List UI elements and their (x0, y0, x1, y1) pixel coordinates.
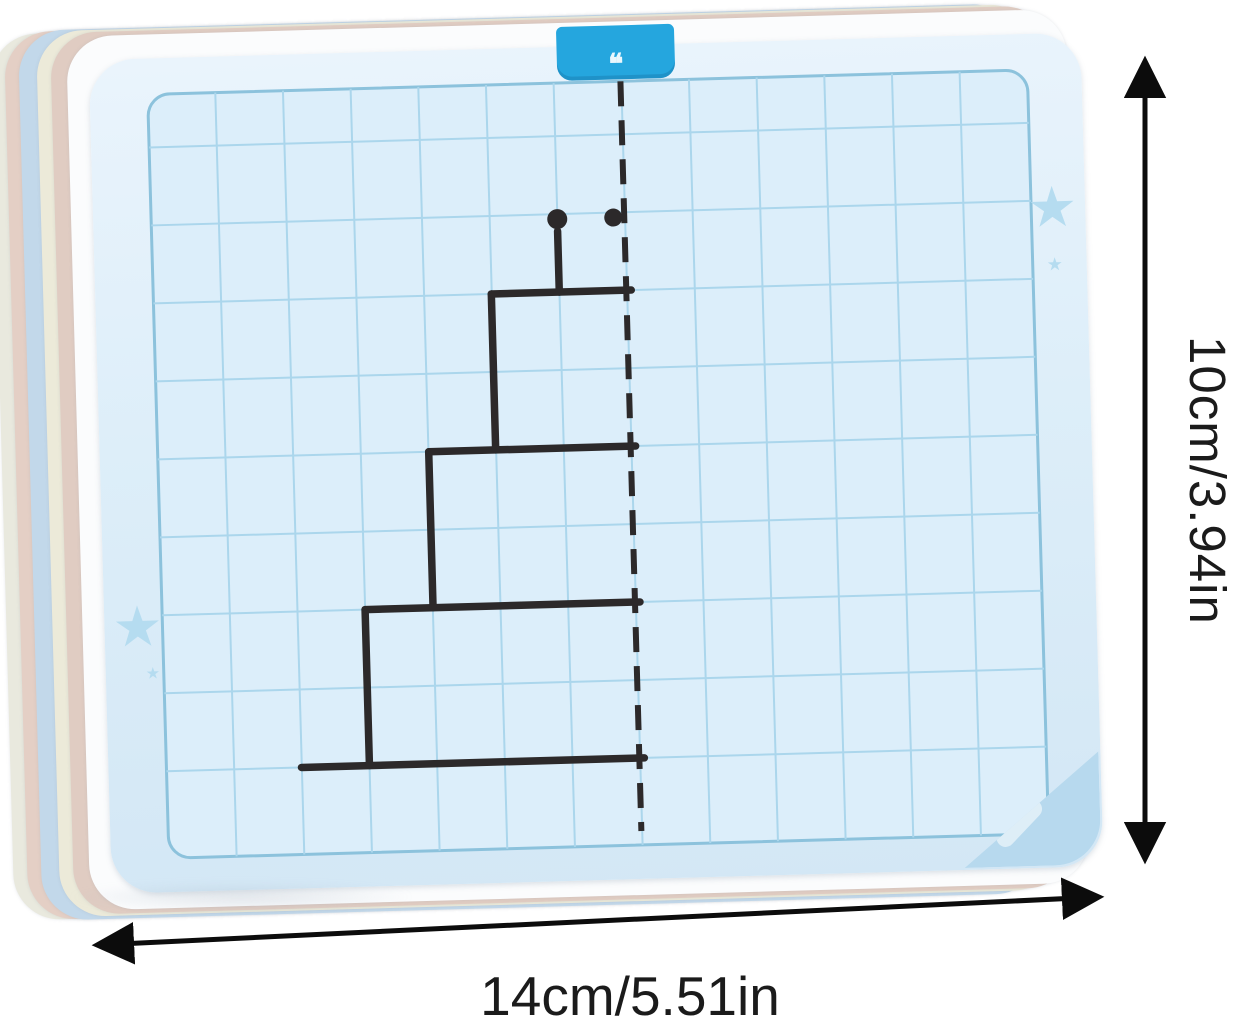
height-dimension-label: 10cm/3.94in (1178, 336, 1237, 625)
dimension-arrows (0, 0, 1250, 1031)
product-image: ❝ ★ ★ ★ ★ 10cm/3.94in 14cm/5.51in (0, 0, 1250, 1031)
width-dimension-arrow (98, 897, 1098, 945)
width-dimension-label: 14cm/5.51in (340, 964, 920, 1028)
